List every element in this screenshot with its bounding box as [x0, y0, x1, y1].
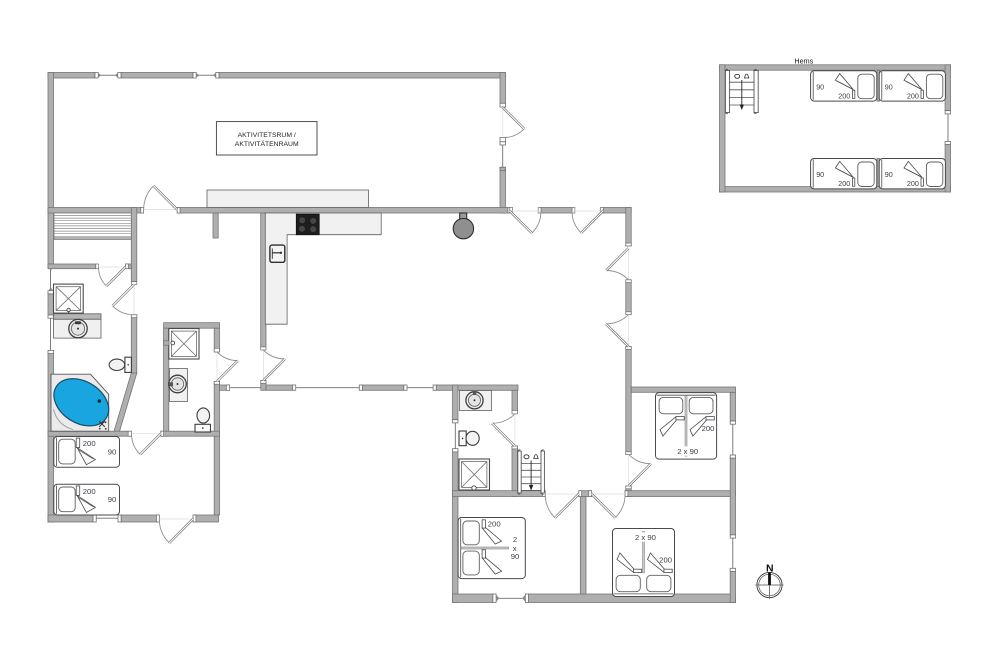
- svg-text:90: 90: [885, 170, 893, 179]
- svg-text:Hems: Hems: [794, 57, 813, 66]
- svg-text:90: 90: [511, 552, 520, 561]
- svg-text:200: 200: [838, 91, 850, 100]
- svg-text:200: 200: [83, 487, 96, 496]
- svg-text:2: 2: [513, 535, 517, 544]
- svg-text:AKTIVITÄTENRAUM: AKTIVITÄTENRAUM: [235, 140, 299, 148]
- svg-text:90: 90: [885, 82, 893, 91]
- svg-text:200: 200: [838, 179, 850, 188]
- svg-text:2 x 90: 2 x 90: [677, 447, 698, 456]
- svg-text:200: 200: [659, 556, 672, 565]
- svg-text:2 x 90: 2 x 90: [635, 533, 656, 542]
- svg-text:200: 200: [907, 91, 919, 100]
- svg-text:90: 90: [108, 495, 117, 504]
- svg-text:90: 90: [108, 447, 117, 456]
- svg-text:90: 90: [816, 82, 824, 91]
- svg-text:200: 200: [83, 439, 96, 448]
- svg-text:200: 200: [488, 519, 501, 528]
- svg-text:N: N: [766, 563, 774, 575]
- svg-text:200: 200: [907, 179, 919, 188]
- svg-text:AKTIVITETSRUM /: AKTIVITETSRUM /: [238, 132, 296, 139]
- svg-text:200: 200: [702, 424, 715, 433]
- svg-text:90: 90: [816, 170, 824, 179]
